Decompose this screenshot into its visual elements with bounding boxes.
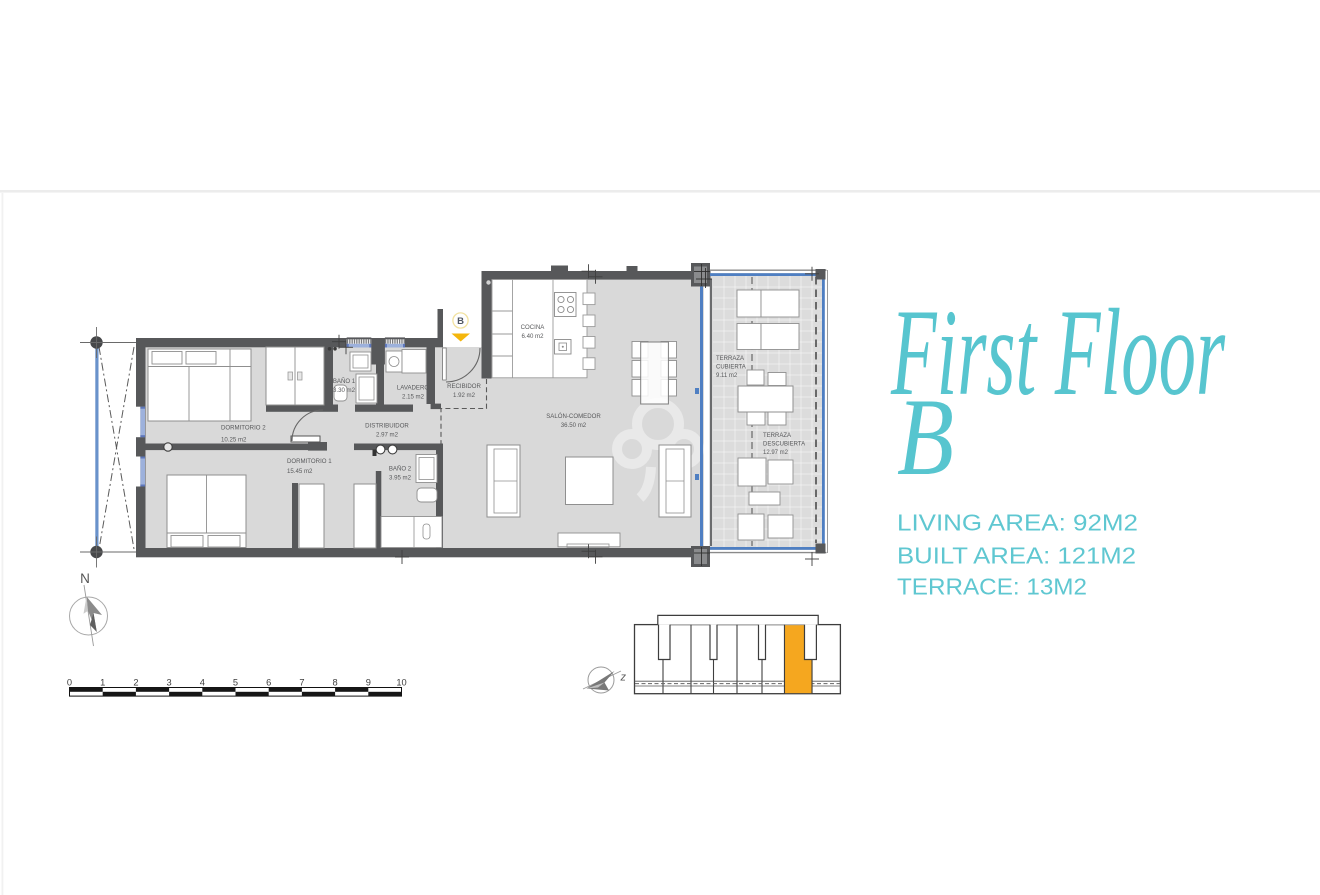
svg-text:RECIBIDOR: RECIBIDOR (447, 383, 481, 390)
svg-text:8: 8 (333, 678, 338, 688)
svg-text:DORMITORIO 2: DORMITORIO 2 (221, 425, 266, 432)
svg-text:10: 10 (396, 678, 406, 688)
svg-text:36.50 m2: 36.50 m2 (561, 422, 587, 429)
svg-text:6.40 m2: 6.40 m2 (521, 333, 544, 340)
svg-text:3: 3 (167, 678, 172, 688)
svg-text:9: 9 (366, 678, 371, 688)
svg-text:2.97 m2: 2.97 m2 (376, 432, 399, 439)
svg-text:4: 4 (200, 678, 205, 688)
svg-text:BUILT AREA: 121M2: BUILT AREA: 121M2 (897, 543, 1136, 569)
svg-text:N: N (80, 571, 90, 586)
svg-text:0: 0 (67, 678, 72, 688)
svg-text:BAÑO 1: BAÑO 1 (333, 378, 356, 385)
svg-text:BAÑO 2: BAÑO 2 (389, 466, 412, 473)
svg-text:1: 1 (100, 678, 105, 688)
svg-text:LIVING AREA: 92M2: LIVING AREA: 92M2 (897, 510, 1138, 536)
svg-text:LAVADERO: LAVADERO (397, 385, 430, 392)
svg-text:TERRACE: 13M2: TERRACE: 13M2 (897, 574, 1087, 600)
svg-text:2.15 m2: 2.15 m2 (402, 394, 425, 401)
svg-text:15.45 m2: 15.45 m2 (287, 468, 313, 475)
svg-text:9.11 m2: 9.11 m2 (716, 373, 738, 379)
svg-text:7: 7 (299, 678, 304, 688)
svg-text:5: 5 (233, 678, 238, 688)
svg-text:DESCUBIERTA: DESCUBIERTA (763, 442, 805, 448)
svg-text:3.30 m2: 3.30 m2 (333, 387, 356, 394)
svg-text:TERRAZA: TERRAZA (763, 433, 791, 439)
svg-text:DISTRIBUIDOR: DISTRIBUIDOR (365, 423, 409, 430)
svg-text:10.25 m2: 10.25 m2 (221, 437, 247, 444)
svg-text:B: B (457, 316, 464, 327)
svg-text:2: 2 (133, 678, 138, 688)
svg-text:SALÓN-COMEDOR: SALÓN-COMEDOR (546, 413, 601, 420)
svg-text:1.92 m2: 1.92 m2 (453, 392, 476, 399)
svg-text:COCINA: COCINA (521, 324, 546, 331)
svg-text:DORMITORIO 1: DORMITORIO 1 (287, 458, 332, 465)
svg-text:z: z (620, 672, 627, 684)
svg-text:B: B (897, 376, 954, 498)
svg-text:6: 6 (266, 678, 271, 688)
svg-text:12.97 m2: 12.97 m2 (763, 450, 789, 456)
svg-text:3.95 m2: 3.95 m2 (389, 475, 412, 482)
svg-text:TERRAZA: TERRAZA (716, 356, 744, 362)
svg-text:CUBIERTA: CUBIERTA (716, 365, 746, 371)
